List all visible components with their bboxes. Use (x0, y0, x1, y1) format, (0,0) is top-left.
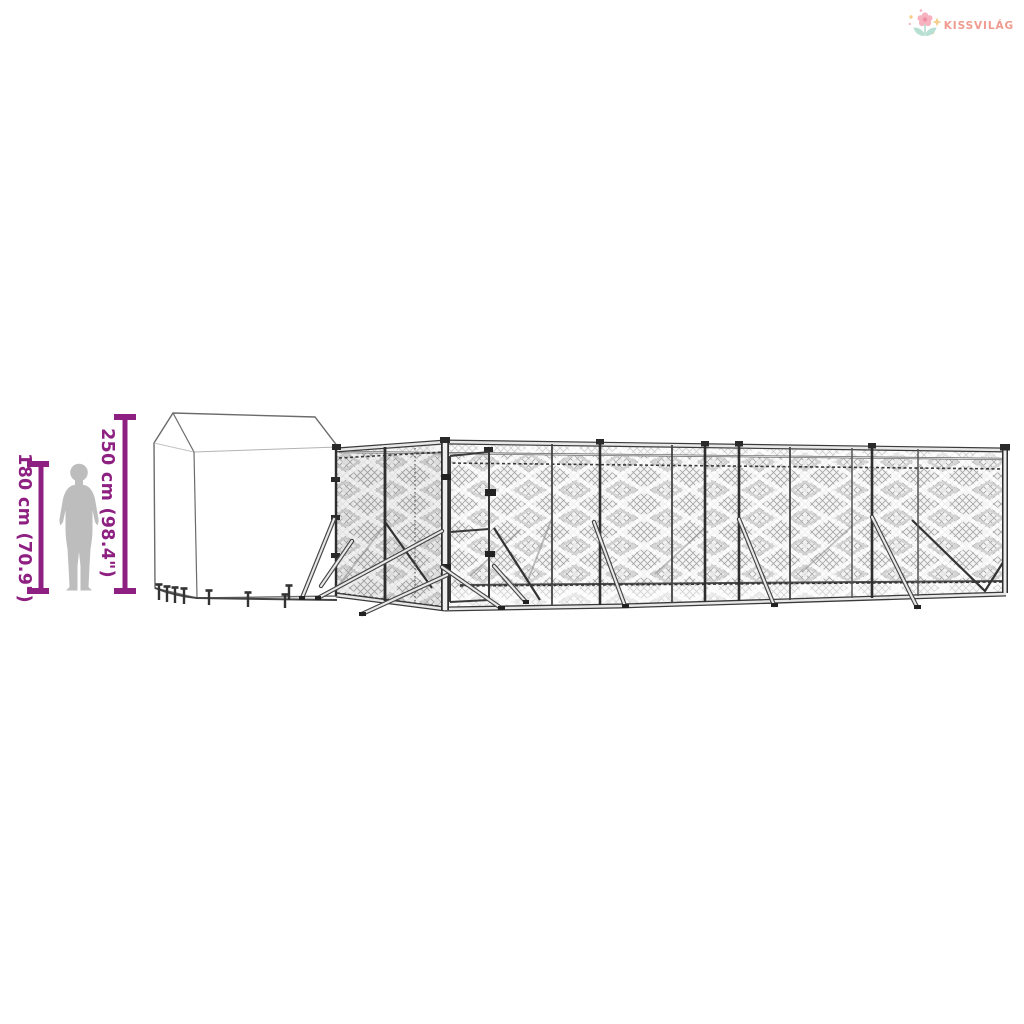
structure-height-label: 250 cm (98.4") (97, 428, 117, 578)
person-height-line (39, 466, 44, 590)
person-silhouette (59, 464, 98, 591)
person-height-dimension: 180 cm (70.9") (14, 453, 49, 603)
structure-height-top-cap (114, 414, 136, 420)
chain-link-cage (299, 437, 1010, 616)
structure-height-line (123, 419, 128, 590)
person-height-label: 180 cm (70.9") (14, 453, 34, 603)
structure-height-bottom-cap (114, 588, 136, 594)
person-body (59, 485, 98, 591)
tent-body (154, 413, 338, 598)
structure-height-dimension: 250 cm (98.4") (97, 414, 136, 594)
kennel-illustration: 180 cm (70.9") 250 cm (98.4") (0, 0, 1024, 1024)
product-dimension-image: KISSVILÁG (0, 0, 1024, 1024)
